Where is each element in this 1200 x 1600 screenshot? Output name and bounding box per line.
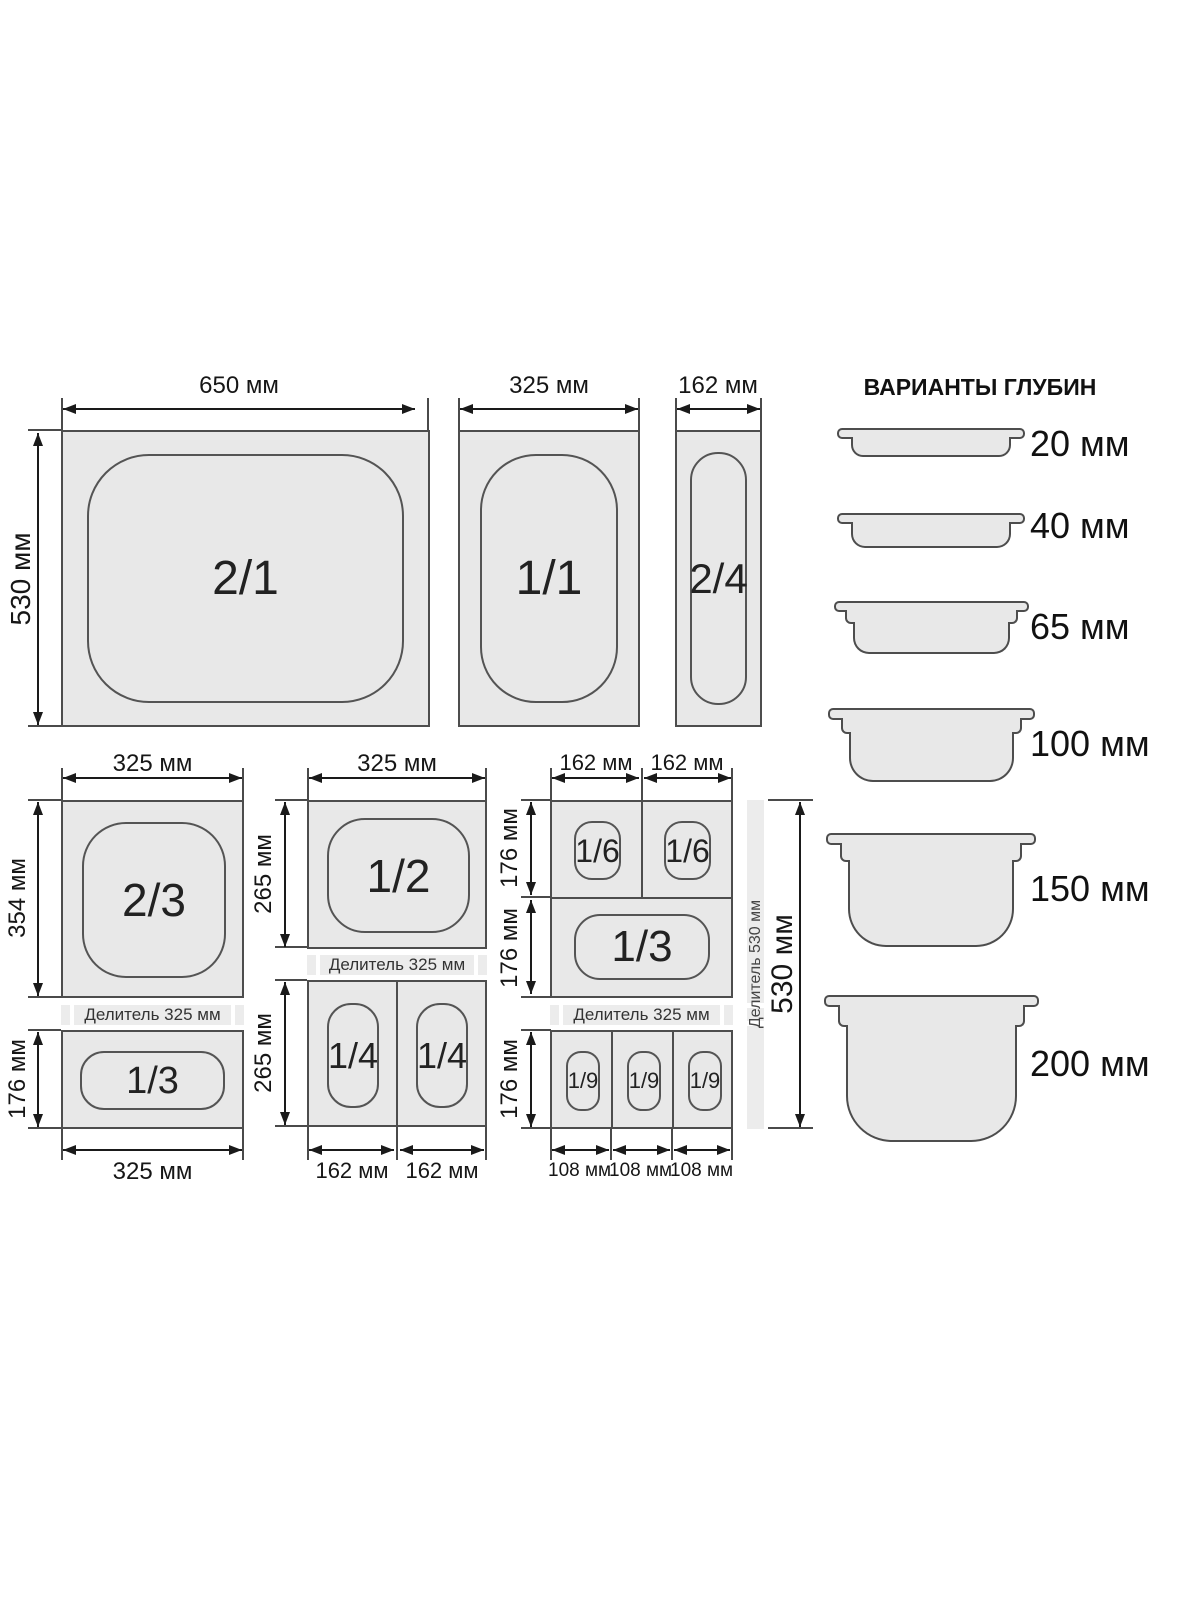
dim-label-650: 650 мм	[63, 372, 415, 400]
pan-1-1-cavity: 1/1	[480, 454, 618, 703]
extension-line	[28, 996, 61, 998]
depth-label-40: 40 мм	[1030, 505, 1130, 547]
pan-1-9-cavity-a: 1/9	[566, 1051, 600, 1111]
col2-dim-label-162b: 162 мм	[397, 1158, 487, 1184]
col1-dim-arrow-bottom	[63, 1149, 242, 1151]
pan-1-6-cavity-a: 1/6	[574, 821, 621, 880]
extension-line	[242, 1129, 244, 1160]
pan-divider-line	[611, 1032, 613, 1127]
pan-1-2: 1/2	[307, 800, 487, 949]
col1-dim-label-bottom: 325 мм	[61, 1158, 244, 1186]
extension-line	[307, 1127, 309, 1160]
col1-dim-label-354: 354 мм	[4, 858, 32, 938]
col3-dim-arrow-176a	[530, 802, 532, 895]
pan-2-1-cavity: 2/1	[87, 454, 404, 703]
pan-1-3-left-cavity: 1/3	[80, 1051, 225, 1110]
extension-line	[760, 398, 762, 430]
depth-label-200: 200 мм	[1030, 1043, 1150, 1085]
depth-pan-200-neck	[838, 1005, 1025, 1027]
dim-arrow-650	[63, 408, 415, 410]
col2-dim-label-162a: 162 мм	[307, 1158, 397, 1184]
pan-1-2-label: 1/2	[367, 853, 431, 899]
pan-1-4-pair: 1/4 1/4	[307, 980, 487, 1127]
extension-line	[768, 799, 813, 801]
depth-label-150: 150 мм	[1030, 868, 1150, 910]
col2-dim-label-265b: 265 мм	[250, 1013, 278, 1093]
pan-1-6-1-3-combo: 1/6 1/6 1/3	[550, 800, 733, 998]
col2-dim-arrow-top	[309, 777, 485, 779]
depth-label-20: 20 мм	[1030, 423, 1130, 465]
extension-line	[731, 1129, 733, 1160]
extension-line	[550, 768, 552, 800]
strip-notch	[720, 1005, 724, 1025]
depth-pan-20-body	[851, 437, 1011, 457]
divider-strip-col1-label: Делитель 325 мм	[84, 1005, 220, 1025]
pan-1-9-label-b: 1/9	[629, 1070, 660, 1092]
col3-dim-arrow-176b	[530, 900, 532, 994]
dim-arrow-530-left	[37, 433, 39, 725]
pan-1-3-left: 1/3	[61, 1030, 244, 1129]
pan-1-9-label-a: 1/9	[568, 1070, 599, 1092]
col3-dim-arrow-162b	[644, 777, 731, 779]
col3-dim-arrow-108a	[552, 1149, 609, 1151]
extension-line	[521, 896, 551, 898]
extension-line	[768, 1127, 813, 1129]
extension-line	[28, 1127, 61, 1129]
pan-1-6-cavity-b: 1/6	[664, 821, 711, 880]
strip-notch	[316, 955, 320, 975]
col2-dim-arrow-162b	[400, 1149, 484, 1151]
col1-dim-arrow-176	[37, 1032, 39, 1127]
col3-dim-label-176a: 176 мм	[496, 808, 524, 888]
pan-divider-line	[552, 897, 731, 899]
pan-2-1-label: 2/1	[212, 555, 279, 603]
strip-notch	[474, 955, 478, 975]
extension-line	[458, 398, 460, 430]
pan-1-9-cavity-b: 1/9	[627, 1051, 661, 1111]
pan-divider-line	[672, 1032, 674, 1127]
dim-arrow-162	[677, 408, 760, 410]
pan-1-4-cavity-a: 1/4	[327, 1003, 379, 1108]
pan-1-6-label-a: 1/6	[575, 835, 619, 867]
pan-2-4-cavity: 2/4	[690, 452, 747, 705]
extension-line	[521, 1029, 551, 1031]
col1-dim-arrow-354	[37, 802, 39, 996]
extension-line	[638, 398, 640, 430]
col3-dim-arrow-162a	[552, 777, 639, 779]
divider-strip-col2-label: Делитель 325 мм	[329, 955, 465, 975]
col3-dim-label-108c: 108 мм	[670, 1160, 733, 1182]
extension-line	[671, 1129, 673, 1160]
pan-1-3-left-label: 1/3	[126, 1062, 179, 1100]
pan-2-3-label: 2/3	[122, 877, 186, 923]
col3-dim-arrow-108c	[674, 1149, 730, 1151]
extension-line	[28, 1029, 61, 1031]
extension-line	[521, 799, 551, 801]
pan-2-3-cavity: 2/3	[82, 822, 226, 978]
pan-1-9-triple: 1/9 1/9 1/9	[550, 1030, 733, 1129]
extension-line	[521, 1127, 551, 1129]
extension-line	[485, 768, 487, 800]
col2-dim-label-265a: 265 мм	[250, 834, 278, 914]
pan-2-4-label: 2/4	[689, 558, 747, 600]
pan-divider-line	[396, 982, 398, 1125]
pan-1-9-label-c: 1/9	[690, 1070, 721, 1092]
pan-divider-line	[641, 802, 643, 899]
depth-pan-100-body	[849, 732, 1014, 782]
depths-title: ВАРИАНТЫ ГЛУБИН	[840, 374, 1120, 401]
extension-line	[521, 996, 551, 998]
extension-line	[307, 768, 309, 800]
pan-1-1: 1/1	[458, 430, 640, 727]
extension-line	[427, 398, 429, 430]
extension-line	[242, 768, 244, 800]
dim-label-162-top: 162 мм	[658, 372, 778, 400]
col3-dim-label-108b: 108 мм	[609, 1160, 672, 1182]
depth-pan-200-body	[846, 1025, 1017, 1142]
extension-line	[485, 1127, 487, 1160]
divider-strip-col1: Делитель 325 мм	[61, 1005, 244, 1025]
pan-1-6-label-b: 1/6	[665, 835, 709, 867]
divider-strip-col3: Делитель 325 мм	[550, 1005, 733, 1025]
col2-dim-arrow-162a	[309, 1149, 394, 1151]
col2-dim-label-top: 325 мм	[307, 750, 487, 778]
pan-2-1: 2/1	[61, 430, 430, 727]
pan-1-2-cavity: 1/2	[327, 818, 470, 933]
extension-line	[396, 1127, 398, 1160]
divider-strip-530-label: Делитель 530 мм	[747, 900, 765, 1028]
depth-label-65: 65 мм	[1030, 606, 1130, 648]
extension-line	[275, 1125, 307, 1127]
pan-1-9-cavity-c: 1/9	[688, 1051, 722, 1111]
strip-notch	[559, 1005, 563, 1025]
col3-dim-label-176b: 176 мм	[496, 908, 524, 988]
divider-strip-col2: Делитель 325 мм	[307, 955, 487, 975]
pan-2-3: 2/3	[61, 800, 244, 998]
col3-dim-arrow-176c	[530, 1032, 532, 1127]
depth-pan-150-body	[848, 860, 1014, 947]
extension-line	[61, 398, 63, 430]
col3-dim-label-108a: 108 мм	[548, 1160, 611, 1182]
dim-arrow-325	[460, 408, 638, 410]
extension-line	[675, 398, 677, 430]
strip-notch	[70, 1005, 74, 1025]
pan-1-1-label: 1/1	[516, 555, 583, 603]
col3-dim-arrow-108b	[613, 1149, 670, 1151]
col1-dim-label-176: 176 мм	[4, 1039, 32, 1119]
extension-line	[61, 768, 63, 800]
col1-dim-arrow-top	[63, 777, 242, 779]
pan-2-4: 2/4	[675, 430, 762, 727]
depth-pan-40-body	[851, 522, 1011, 548]
pan-1-3-combo-label: 1/3	[611, 925, 672, 969]
divider-strip-col3-label: Делитель 325 мм	[573, 1005, 709, 1025]
pan-1-3-combo-cavity: 1/3	[574, 914, 710, 980]
depth-label-100: 100 мм	[1030, 723, 1150, 765]
col3-dim-label-530: 530 мм	[766, 914, 800, 1014]
extension-line	[28, 429, 62, 431]
pan-1-4-label-b: 1/4	[417, 1038, 467, 1074]
dim-label-530-left: 530 мм	[5, 533, 37, 626]
strip-notch	[231, 1005, 235, 1025]
dim-label-325-top: 325 мм	[459, 372, 639, 400]
extension-line	[28, 725, 62, 727]
extension-line	[28, 799, 61, 801]
extension-line	[610, 1129, 612, 1160]
col3-dim-label-176c: 176 мм	[496, 1039, 524, 1119]
pan-1-4-label-a: 1/4	[328, 1038, 378, 1074]
gn-pan-size-diagram: 650 мм 530 мм 2/1 325 мм 1/1 162 мм 2/4 …	[0, 0, 1200, 1600]
col1-dim-label-top: 325 мм	[61, 750, 244, 778]
extension-line	[731, 768, 733, 800]
col2-dim-arrow-265b	[284, 982, 286, 1125]
extension-line	[275, 799, 307, 801]
extension-line	[641, 768, 643, 800]
depth-pan-65-body	[853, 622, 1010, 654]
extension-line	[275, 979, 307, 981]
col2-dim-arrow-265a	[284, 802, 286, 947]
pan-1-4-cavity-b: 1/4	[416, 1003, 468, 1108]
